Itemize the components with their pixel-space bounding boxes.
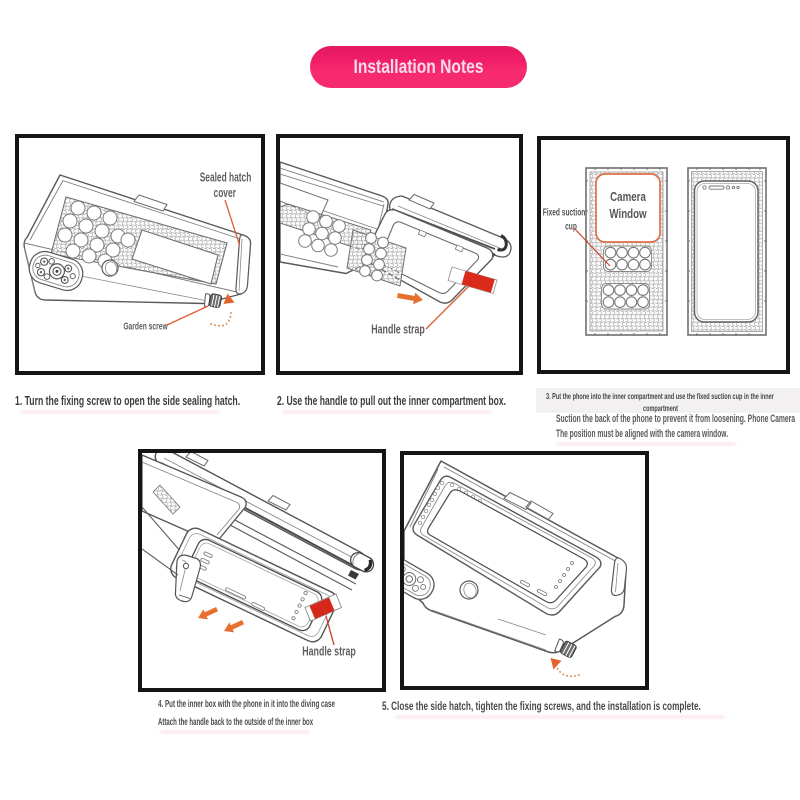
svg-text:Handle strap: Handle strap: [302, 645, 356, 659]
svg-text:Camera: Camera: [610, 191, 646, 204]
svg-text:Sealed hatch: Sealed hatch: [200, 171, 252, 185]
svg-text:Handle strap: Handle strap: [371, 323, 425, 337]
svg-text:Garden screw: Garden screw: [123, 320, 167, 332]
svg-text:cup: cup: [565, 220, 577, 232]
svg-text:cover: cover: [214, 186, 236, 200]
svg-text:Window: Window: [609, 208, 646, 221]
svg-text:Fixed suction: Fixed suction: [543, 206, 586, 218]
